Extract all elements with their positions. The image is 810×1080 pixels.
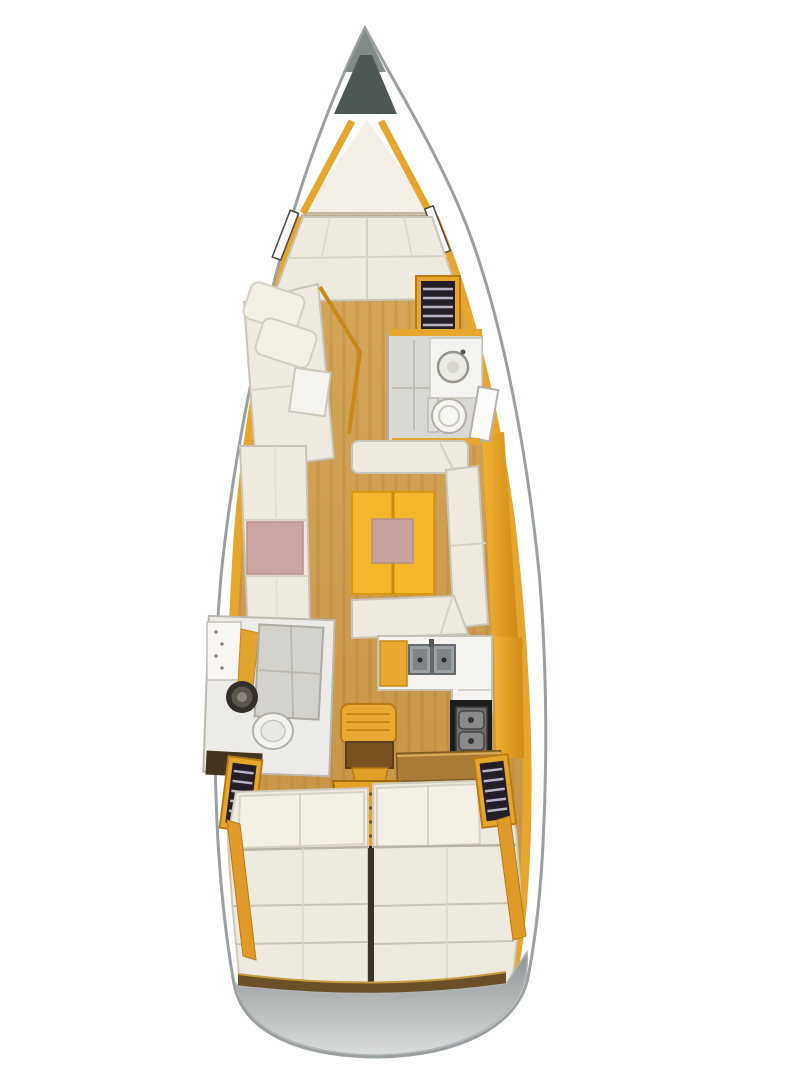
forward-seat-step	[289, 368, 331, 417]
forward-toilet	[432, 399, 466, 433]
galley-faucet	[429, 639, 434, 647]
starboard-aft-sideboard	[494, 636, 524, 758]
berth-divider	[368, 848, 374, 985]
forward-hanging-locker	[416, 276, 460, 338]
aft-cabin-starboard	[373, 754, 526, 985]
aft-head-cabinet	[207, 622, 241, 680]
galley-stove	[450, 700, 492, 758]
forward-head-faucet	[461, 350, 466, 355]
salon-table-inlay	[372, 519, 413, 563]
port-settee-panel	[247, 522, 303, 574]
salon-table	[352, 492, 434, 594]
forward-head-sill	[390, 329, 482, 336]
salon-port-settee	[240, 446, 310, 632]
galley-cabinet	[380, 641, 407, 686]
nav-seat-cushion	[346, 742, 393, 768]
nav-seat-back	[341, 704, 396, 744]
forward-head-bathroom	[388, 329, 498, 445]
yacht-floorplan	[0, 0, 810, 1080]
aft-head-bathroom	[203, 616, 334, 778]
floorplan-canvas	[0, 0, 810, 1080]
aft-cabin-port	[220, 756, 368, 985]
